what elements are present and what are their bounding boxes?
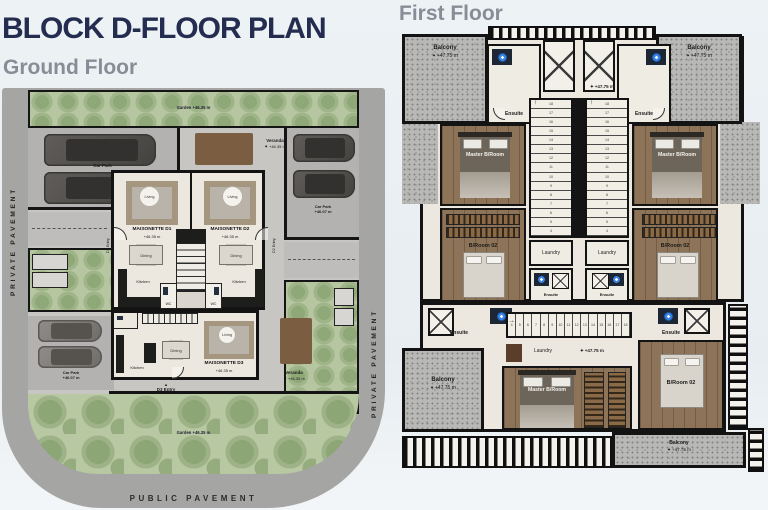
unit-level-d3: +46.35 m	[190, 368, 258, 373]
wc-room-d2: WC	[205, 283, 222, 309]
private-pavement-left-label: PRIVATE PAVEMENT	[10, 154, 17, 296]
master-bedroom-right: Master B/Room	[632, 124, 718, 206]
balcony-level: ✦+47.75 m	[667, 447, 691, 453]
stair-step: 7	[587, 200, 627, 209]
stair-step: 14	[589, 314, 597, 336]
laundry-label: Laundry	[587, 250, 627, 256]
stair-step: 5	[516, 314, 524, 336]
entry-label-d1: D1 Entry	[106, 227, 110, 253]
washbasin-box	[609, 273, 624, 286]
car-park-bottom-left: Car Park +46.07 m	[28, 316, 114, 390]
stair-direction-arrow: ↑	[507, 320, 514, 323]
stair-step: 4	[531, 227, 571, 236]
staircase-d3	[142, 313, 198, 324]
washbasin-marker	[497, 312, 506, 321]
stair-step: 12	[531, 154, 571, 163]
dining-table-d1: Dining	[129, 245, 163, 265]
veranda-table	[280, 318, 312, 364]
stair-step: 15	[587, 127, 627, 136]
pillow	[685, 358, 701, 366]
stair-step: 13	[581, 314, 589, 336]
bedroom2-label: B/Room 02	[442, 243, 524, 250]
wardrobe	[446, 214, 520, 225]
stair-step: 14	[531, 136, 571, 145]
pillow	[486, 256, 501, 264]
master-bedroom-label: Master B/Room	[520, 387, 574, 394]
wc-fixture	[117, 316, 123, 320]
bedroom2-right: B/Room 02	[632, 208, 718, 302]
mattress	[652, 172, 702, 198]
maisonette-d1-d2-building: Living MAISONETTE D1 +46.35 m Dining Kit…	[111, 170, 265, 310]
maisonette-d3-building: Kitchen Dining Living MAISONETTE D3 +46.…	[111, 310, 259, 380]
driveway-centerline	[32, 228, 107, 229]
mattress	[460, 172, 510, 198]
balcony-label: Balcony ✦+47.75 m	[405, 377, 481, 391]
balcony-top-left: Balcony ✦+47.75 m	[402, 34, 488, 124]
shower-stall	[552, 273, 569, 289]
pillow	[655, 139, 674, 149]
ensuite-mid-right: Ensuite	[585, 268, 629, 302]
storage-room	[32, 272, 68, 288]
compass-icon: ✦	[264, 144, 268, 149]
stair-step: 7	[531, 200, 571, 209]
shower-stall	[543, 40, 575, 92]
garden-strip-top: Garden +46.35 m	[28, 90, 359, 128]
storage-room	[334, 288, 354, 306]
bed	[463, 252, 505, 298]
pillow	[463, 139, 482, 149]
laundry-left: Laundry	[529, 240, 573, 266]
living-label-circle: Living	[222, 186, 243, 207]
stair-step: 4	[508, 314, 516, 336]
washbasin-box	[534, 273, 549, 286]
washbasin-box	[646, 49, 666, 65]
bedroom2-left: B/Room 02	[440, 208, 526, 302]
staircase-right: 181716151413121110987654	[585, 98, 629, 238]
car	[38, 346, 102, 368]
veranda-level: ✦+46.35 m	[283, 376, 305, 382]
compass-icon: ✦	[667, 447, 671, 452]
unit-name-d3: MAISONETTE D3	[190, 361, 258, 367]
stair-step: 16	[531, 118, 571, 127]
kitchen-counter-d1	[118, 297, 162, 307]
shower-stall	[592, 273, 609, 289]
stair-step: 6	[524, 314, 532, 336]
compass-icon: ✦	[430, 385, 434, 390]
wc-label-d2: WC	[206, 302, 221, 306]
unit-name-d1: MAISONETTE D1	[116, 227, 188, 233]
balcony-label: Balcony ✦+47.75 m	[659, 45, 739, 59]
washbasin-marker	[538, 276, 545, 283]
louvre-screen-right	[728, 304, 748, 430]
level-label-top: ✦+47.75 m	[590, 84, 650, 90]
laundry-right: Laundry	[585, 240, 629, 266]
stair-step: 12	[573, 314, 581, 336]
garden-label: Garden +46.35 m	[28, 430, 359, 435]
staircase-bottom: 456789101112131415161718	[506, 312, 632, 338]
pergola-bottom	[402, 436, 612, 468]
driveway-centerline	[288, 259, 355, 260]
wardrobe	[642, 227, 716, 238]
kitchen-label-d2: Kitchen	[224, 279, 254, 284]
driveway-left	[28, 212, 111, 246]
stair-step: 6	[587, 209, 627, 218]
bed: Master B/Room	[460, 136, 510, 198]
balcony-bottom-left: Balcony ✦+47.75 m	[402, 348, 484, 432]
stair-step: 15	[598, 314, 606, 336]
veranda-level: ✦+46.35 m	[264, 144, 286, 150]
stair-step: 9	[587, 182, 627, 191]
washbasin-box	[492, 49, 512, 65]
storage-room	[32, 254, 68, 270]
bedroom2-label: B/Room 02	[634, 243, 716, 250]
master-bedroom-label: Master B/Room	[652, 152, 702, 159]
wc-label-d1: WC	[161, 302, 176, 306]
stair-step: 8	[587, 191, 627, 200]
bedroom2-label: B/Room 02	[640, 380, 722, 387]
ensuite-label: Ensuite	[648, 330, 694, 336]
kitchen-counter-d2	[220, 297, 264, 307]
balcony-level: ✦+47.75 m	[432, 53, 458, 60]
stair-step: 17	[531, 109, 571, 118]
staircase-ground	[176, 243, 206, 291]
bed	[657, 252, 699, 298]
stair-step: 18	[622, 314, 630, 336]
stair-direction-arrow: ↑	[534, 100, 537, 107]
stair-step: 6	[531, 209, 571, 218]
pillow	[489, 139, 508, 149]
bed: Master B/Room	[652, 136, 702, 198]
headboard	[650, 132, 704, 137]
stair-step: 13	[587, 145, 627, 154]
first-floor-label: First Floor	[399, 2, 503, 26]
stair-step: 9	[531, 182, 571, 191]
stair-step: 9	[549, 314, 557, 336]
page-title: BLOCK D-FLOOR PLAN	[2, 12, 326, 46]
washbasin-marker	[498, 53, 507, 62]
pillow	[551, 377, 572, 387]
ensuite-label: Ensuite	[531, 292, 571, 297]
storage-room	[334, 308, 354, 326]
stair-step: 14	[587, 136, 627, 145]
stair-step: 8	[541, 314, 549, 336]
kitchen-label-d3: Kitchen	[124, 365, 150, 370]
garden-label: Garden +46.35 m	[30, 105, 357, 110]
balcony-label: Balcony ✦+47.75 m	[405, 45, 485, 59]
balcony-level: ✦+47.75 m	[430, 385, 456, 392]
washbasin-marker	[652, 53, 661, 62]
pillow	[466, 256, 481, 264]
pillow	[664, 358, 680, 366]
balcony-label: Balcony ✦+47.75 m	[615, 440, 743, 452]
unit-name-d2: MAISONETTE D2	[194, 227, 266, 233]
stair-step: 12	[587, 154, 627, 163]
public-pavement-label: PUBLIC PAVEMENT	[2, 494, 385, 503]
stair-step: 4	[587, 227, 627, 236]
staircase-left: 181716151413121110987654	[529, 98, 573, 238]
stair-step: 16	[587, 118, 627, 127]
headboard	[518, 370, 576, 375]
veranda-table	[195, 133, 253, 165]
wc-fixture	[163, 287, 168, 295]
dining-table-d3: Dining	[162, 341, 190, 359]
car-park-label: Car Park +46.07 m	[28, 370, 114, 380]
washbasin-marker	[613, 276, 620, 283]
laundry-label: Laundry	[531, 250, 571, 256]
garden-patch-left	[28, 248, 114, 312]
stair-step: 10	[531, 173, 571, 182]
master-bedroom-label: Master B/Room	[460, 152, 510, 159]
laundry-appliance	[506, 344, 522, 362]
pergola-top	[488, 26, 656, 40]
stair-landing	[176, 291, 206, 309]
ground-floor-plan: PUBLIC PAVEMENT Garden +46.35 m PRIVATE …	[2, 88, 385, 508]
kitchen-label-d1: Kitchen	[128, 279, 158, 284]
stair-step: 15	[531, 127, 571, 136]
compass-icon: ✦	[283, 376, 287, 381]
wc-room-d1: WC	[160, 283, 177, 309]
louvre-screen-corner	[748, 428, 764, 472]
stair-step: 16	[606, 314, 614, 336]
washbasin-marker	[664, 312, 673, 321]
car	[293, 134, 355, 162]
car-park-label: Car Park	[28, 163, 177, 169]
private-pavement-right-label: PRIVATE PAVEMENT	[371, 268, 378, 418]
master-bedroom-bottom: Master B/Room	[502, 366, 632, 430]
living-label-circle: Living	[218, 326, 236, 344]
dining-table-d2: Dining	[219, 245, 253, 265]
car	[44, 134, 156, 166]
stair-step: 10	[557, 314, 565, 336]
balcony-bottom-right: Balcony ✦+47.75 m	[612, 432, 746, 468]
bedroom2-bottom: B/Room 02	[638, 340, 724, 430]
ensuite-mid-left: Ensuite	[529, 268, 573, 302]
laundry-label: Laundry	[524, 348, 562, 354]
ensuite-label: Ensuite	[436, 330, 482, 336]
compass-icon: ✦	[432, 53, 436, 58]
pillow	[680, 256, 695, 264]
stair-step: 5	[531, 218, 571, 227]
balcony-top-left-side	[402, 122, 438, 204]
stair-step: 5	[587, 218, 627, 227]
living-label-circle: Living	[139, 186, 160, 207]
compass-icon: ✦	[590, 84, 594, 89]
stair-step: 11	[565, 314, 573, 336]
stair-step: 11	[531, 163, 571, 172]
balcony-top-right-side	[720, 122, 760, 204]
bathroom-d3	[114, 313, 138, 329]
pillow	[523, 377, 544, 387]
veranda-label: Veranda ✦+46.35 m	[264, 370, 324, 382]
stair-step: 17	[587, 109, 627, 118]
entry-door-d3	[172, 367, 184, 379]
party-wall	[190, 173, 192, 229]
stair-step: 11	[587, 163, 627, 172]
stair-step: 13	[531, 145, 571, 154]
balcony-level: ✦+47.75 m	[686, 53, 712, 60]
stair-step: 10	[587, 173, 627, 182]
wardrobe	[608, 372, 626, 428]
compass-icon: ✦	[686, 53, 690, 58]
kitchen-counter-d3	[116, 335, 124, 373]
car-park-label: Car Park +46.07 m	[287, 204, 359, 214]
veranda-label: Veranda ✦+46.35 m	[252, 138, 298, 150]
mattress	[520, 405, 574, 428]
stair-divider-wall	[573, 98, 585, 238]
pillow	[660, 256, 675, 264]
ground-floor-label: Ground Floor	[3, 56, 137, 80]
floor-plan-canvas: BLOCK D-FLOOR PLAN Ground Floor First Fl…	[0, 0, 768, 510]
washbasin-box	[658, 308, 678, 324]
kitchen-island-d3	[144, 343, 156, 363]
master-bedroom-left: Master B/Room	[440, 124, 526, 206]
stair-step: 8	[531, 191, 571, 200]
ensuite-label: Ensuite	[587, 292, 627, 297]
level-label-bottom: ✦+47.75 m	[580, 348, 636, 354]
stair-step: 17	[614, 314, 622, 336]
wc-fixture	[214, 287, 219, 295]
entry-label-d2: D2 Entry	[272, 227, 276, 253]
compass-icon: ✦	[580, 348, 584, 353]
stair-direction-arrow: ↑	[590, 100, 593, 107]
wardrobe	[446, 227, 520, 238]
car	[38, 320, 102, 342]
stair-step: 7	[532, 314, 540, 336]
bed: Master B/Room	[520, 374, 574, 428]
wardrobe	[642, 214, 716, 225]
pillow	[681, 139, 700, 149]
wardrobe	[584, 372, 604, 428]
first-floor-plan: Balcony ✦+47.75 m Balcony ✦+47.75 m Ensu…	[402, 26, 766, 478]
car	[293, 170, 355, 198]
headboard	[458, 132, 512, 137]
driveway-right	[284, 242, 359, 278]
garden-bottom: Garden +46.35 m	[28, 394, 359, 474]
